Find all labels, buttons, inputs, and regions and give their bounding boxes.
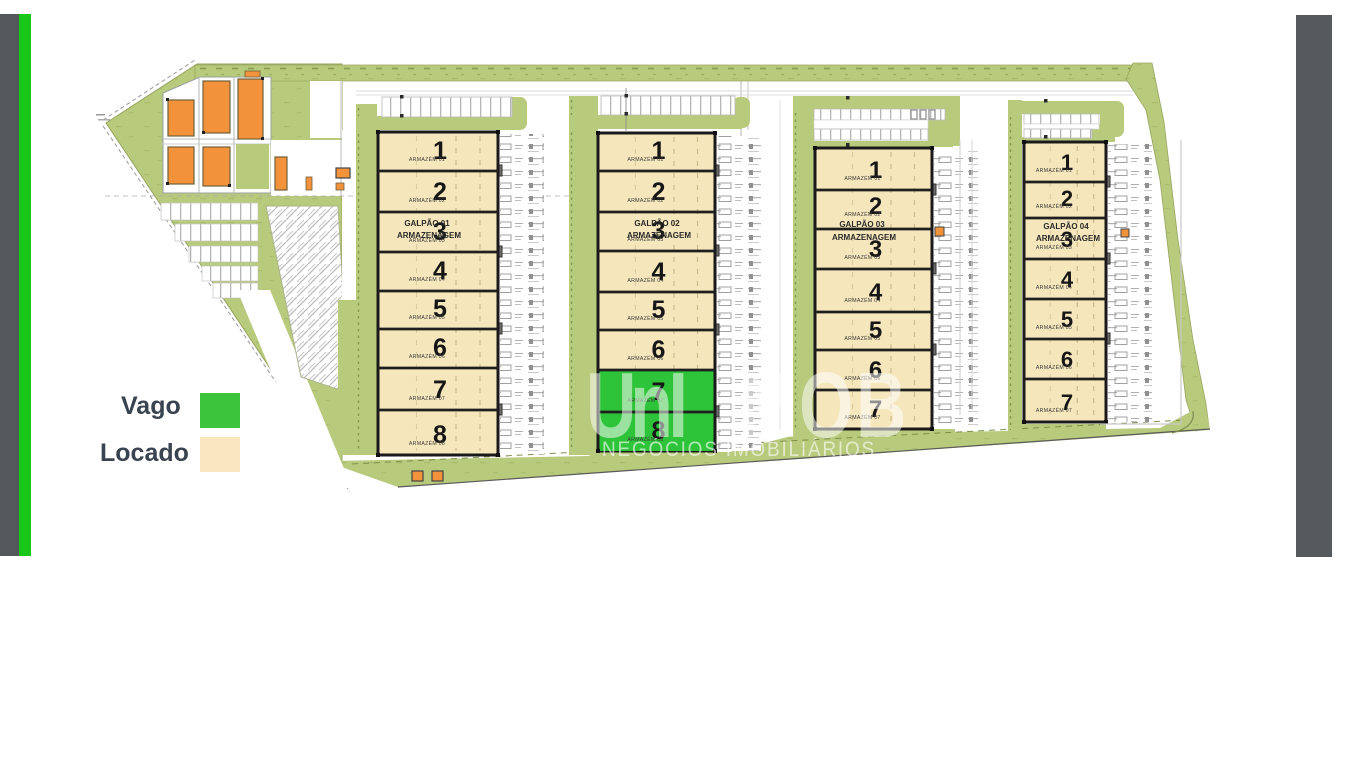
svg-text:ARMAZENAGEM: ARMAZENAGEM [627, 231, 691, 240]
svg-text:ARMAZENAGEM: ARMAZENAGEM [1036, 234, 1100, 243]
svg-text:ARMAZÉM 06: ARMAZÉM 06 [1036, 364, 1072, 371]
svg-text:ARMAZÉM 01: ARMAZÉM 01 [844, 175, 880, 182]
svg-text:ARMAZÉM 05: ARMAZÉM 05 [409, 314, 445, 321]
svg-text:Locado: Locado [100, 439, 189, 467]
svg-text:ARMAZENAGEM: ARMAZENAGEM [397, 231, 461, 240]
svg-text:GALPÃO 03: GALPÃO 03 [839, 220, 885, 229]
svg-text:GALPÃO 02: GALPÃO 02 [634, 219, 680, 228]
svg-text:ARMAZÉM 06: ARMAZÉM 06 [409, 353, 445, 360]
svg-text:GALPÃO 04: GALPÃO 04 [1043, 222, 1089, 231]
svg-text:ARMAZÉM 03: ARMAZÉM 03 [844, 254, 880, 261]
svg-text:ARMAZÉM 01: ARMAZÉM 01 [627, 156, 663, 163]
svg-text:ARMAZÉM 07: ARMAZÉM 07 [409, 395, 445, 402]
svg-text:ARMAZÉM 03: ARMAZÉM 03 [1036, 244, 1072, 251]
svg-text:ARMAZÉM 02: ARMAZÉM 02 [409, 197, 445, 204]
svg-text:ARMAZÉM 02: ARMAZÉM 02 [844, 211, 880, 218]
svg-text:ARMAZÉM 04: ARMAZÉM 04 [627, 277, 663, 284]
svg-text:ARMAZÉM 05: ARMAZÉM 05 [1036, 324, 1072, 331]
svg-text:ARMAZÉM 01: ARMAZÉM 01 [409, 156, 445, 163]
svg-text:ARMAZÉM 04: ARMAZÉM 04 [844, 297, 880, 304]
svg-text:ARMAZÉM 02: ARMAZÉM 02 [627, 197, 663, 204]
svg-text:ARMAZÉM 02: ARMAZÉM 02 [1036, 203, 1072, 210]
svg-text:ARMAZÉM 04: ARMAZÉM 04 [1036, 284, 1072, 291]
svg-text:ARMAZÉM 04: ARMAZÉM 04 [409, 276, 445, 283]
svg-text:ARMAZENAGEM: ARMAZENAGEM [832, 233, 896, 242]
svg-text:GALPÃO 01: GALPÃO 01 [404, 219, 450, 228]
svg-text:ARMAZÉM 07: ARMAZÉM 07 [1036, 407, 1072, 414]
svg-text:ARMAZÉM 01: ARMAZÉM 01 [1036, 167, 1072, 174]
svg-text:ARMAZÉM 05: ARMAZÉM 05 [627, 315, 663, 322]
svg-text:ARMAZÉM 08: ARMAZÉM 08 [409, 440, 445, 447]
svg-text:ARMAZÉM 05: ARMAZÉM 05 [844, 335, 880, 342]
svg-text:NEGÓCIOS IMOBILIÁRIOS: NEGÓCIOS IMOBILIÁRIOS [602, 438, 876, 461]
svg-text:Vago: Vago [121, 392, 181, 420]
